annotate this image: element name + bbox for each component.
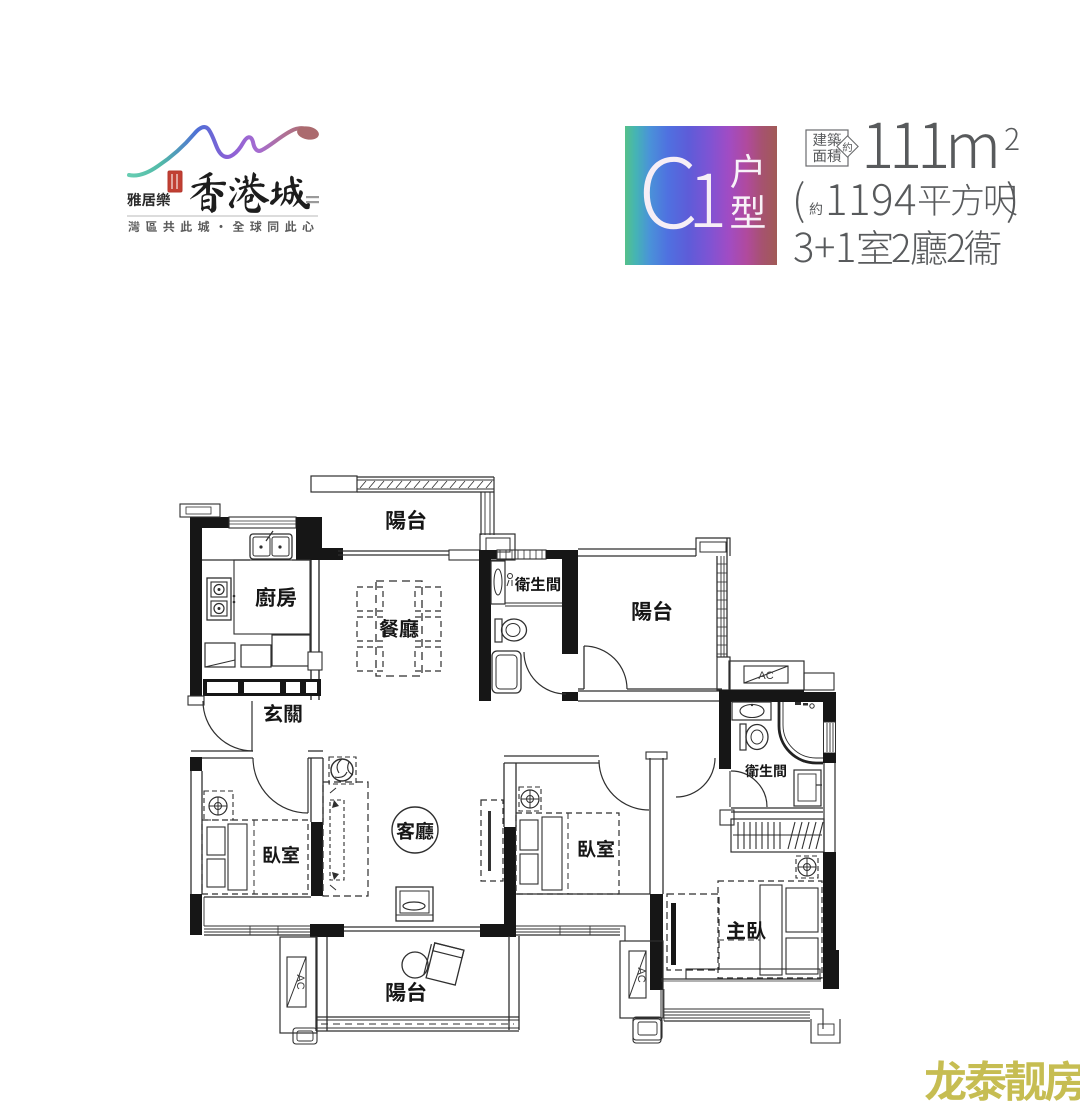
svg-text:AC: AC bbox=[758, 670, 773, 682]
svg-text:AC: AC bbox=[294, 974, 306, 989]
svg-text:AC: AC bbox=[635, 967, 647, 982]
